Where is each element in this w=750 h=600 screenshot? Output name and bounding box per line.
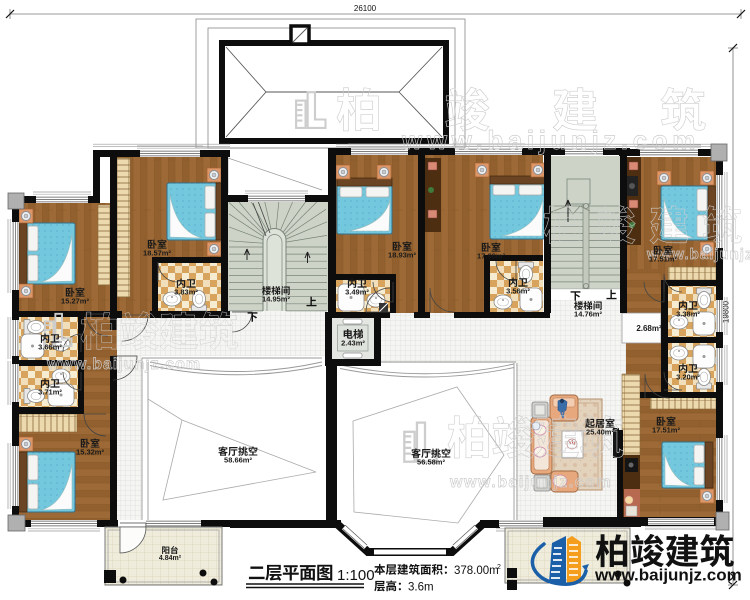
svg-text:3.71m²: 3.71m² (38, 388, 62, 397)
svg-text:2: 2 (497, 564, 501, 571)
svg-text:4.84m²: 4.84m² (159, 555, 182, 562)
svg-text:www.baijunjz.com: www.baijunjz.com (449, 474, 612, 491)
svg-text:14.76m²: 14.76m² (574, 310, 602, 319)
svg-text:15.32m²: 15.32m² (76, 448, 104, 457)
svg-text:378.00m: 378.00m (454, 565, 499, 577)
svg-text:www.baijunjz.com: www.baijunjz.com (594, 566, 742, 585)
svg-text:3.56m²: 3.56m² (506, 287, 530, 296)
svg-text:17.51m²: 17.51m² (649, 255, 677, 264)
svg-text:www.baijunjz.com: www.baijunjz.com (46, 356, 201, 373)
svg-text:17.96m²: 17.96m² (477, 252, 505, 261)
svg-text:www.baijunjz.com: www.baijunjz.com (401, 125, 700, 155)
svg-text:1:100: 1:100 (337, 567, 375, 584)
svg-text:14.95m²: 14.95m² (262, 295, 290, 304)
svg-text:18.93m²: 18.93m² (388, 251, 416, 260)
svg-text:17.51m²: 17.51m² (652, 426, 680, 435)
svg-text:3.49m²: 3.49m² (345, 288, 369, 297)
svg-text:3.83m²: 3.83m² (174, 288, 198, 297)
svg-text:3.66m²: 3.66m² (38, 343, 62, 352)
svg-text:25.40m²: 25.40m² (586, 428, 614, 437)
svg-text:26100: 26100 (354, 4, 377, 13)
svg-text:2.43m²: 2.43m² (341, 339, 365, 348)
svg-text:3.38m²: 3.38m² (676, 310, 700, 319)
svg-text:15.27m²: 15.27m² (61, 297, 89, 306)
svg-text:3.20m²: 3.20m² (676, 373, 700, 382)
svg-text:3.6m: 3.6m (408, 582, 434, 594)
svg-text:56.58m²: 56.58m² (417, 458, 445, 467)
svg-text:18.57m²: 18.57m² (143, 249, 171, 258)
svg-text:58.66m²: 58.66m² (224, 456, 252, 465)
svg-text:2.68m²: 2.68m² (636, 324, 662, 333)
